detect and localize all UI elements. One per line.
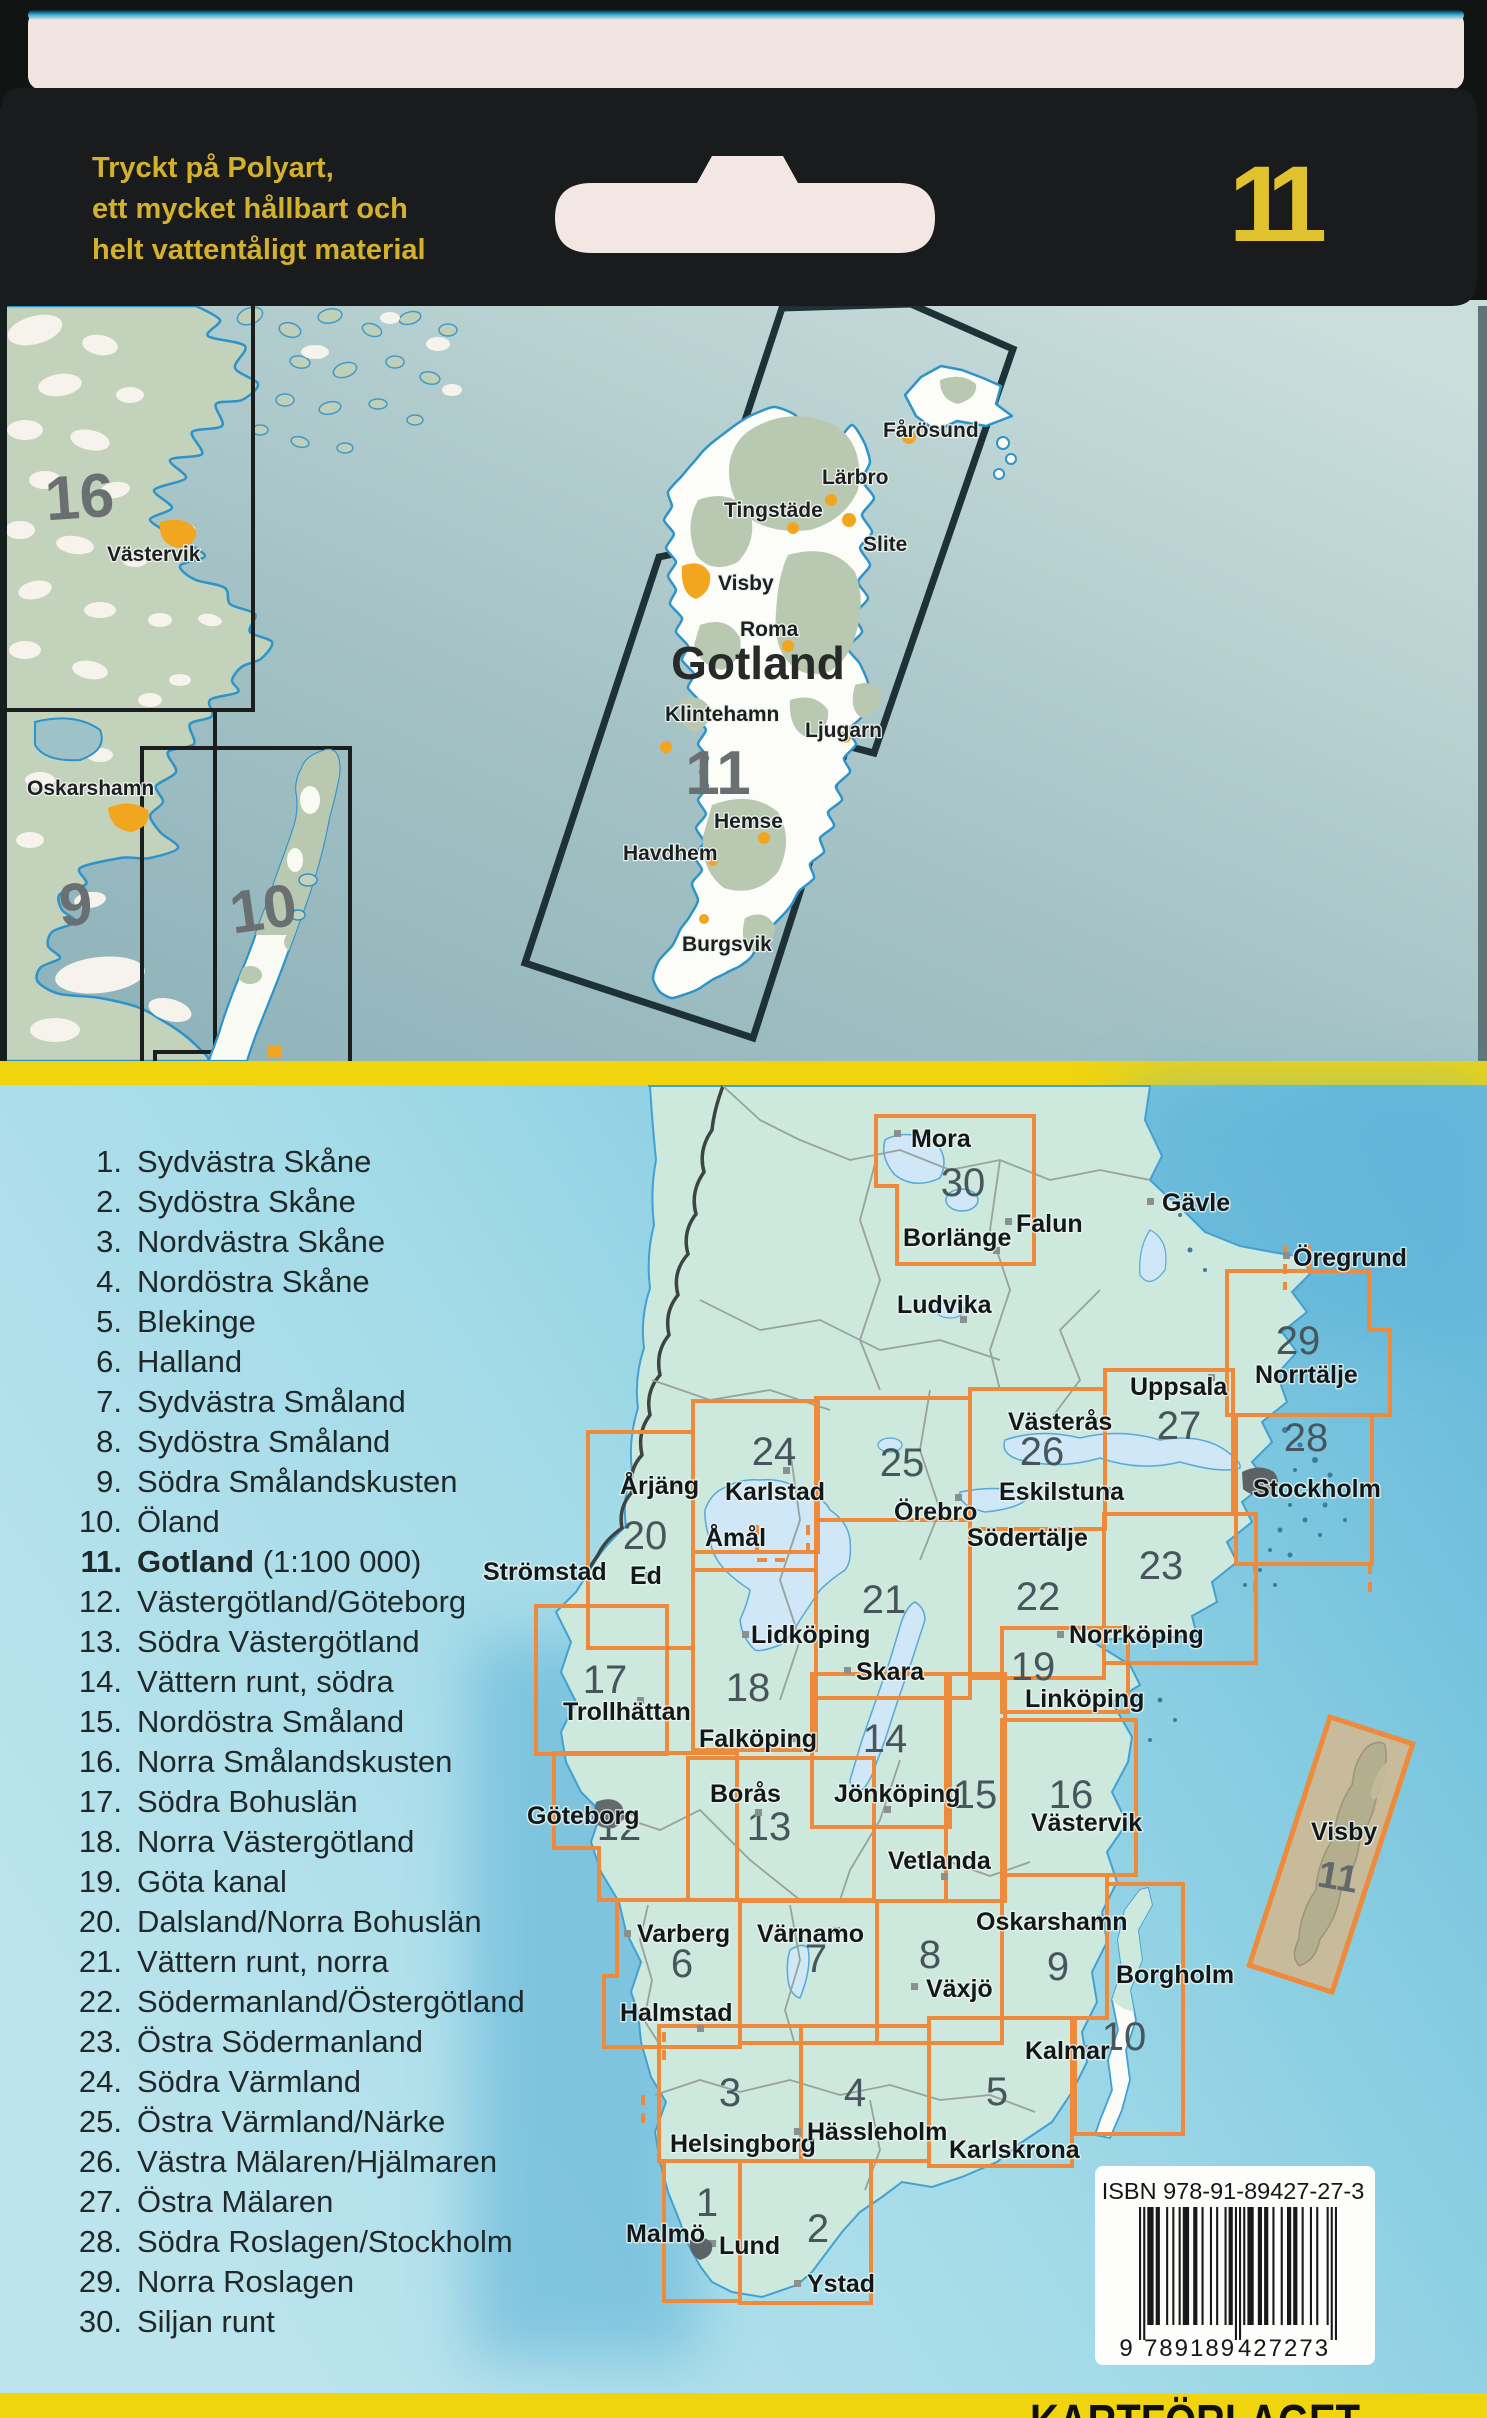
- svg-text:Västergötland/Göteborg: Västergötland/Göteborg: [137, 1584, 466, 1619]
- svg-text:30.: 30.: [79, 2304, 122, 2339]
- svg-text:23: 23: [1139, 1544, 1184, 1588]
- svg-text:Vättern runt, södra: Vättern runt, södra: [137, 1664, 395, 1699]
- svg-text:Lund: Lund: [719, 2232, 780, 2260]
- svg-text:Oskarshamn: Oskarshamn: [27, 777, 154, 800]
- svg-text:20.: 20.: [79, 1904, 122, 1939]
- svg-text:10.: 10.: [79, 1504, 122, 1539]
- svg-text:Västra Mälaren/Hjälmaren: Västra Mälaren/Hjälmaren: [137, 2144, 497, 2179]
- svg-text:Södertälje: Södertälje: [967, 1524, 1088, 1552]
- svg-text:Göteborg: Göteborg: [527, 1802, 640, 1830]
- svg-text:Trollhättan: Trollhättan: [563, 1698, 691, 1726]
- svg-text:Södra Bohuslän: Södra Bohuslän: [137, 1784, 358, 1819]
- svg-text:ISBN 978-91-89427-27-3: ISBN 978-91-89427-27-3: [1102, 2178, 1365, 2204]
- svg-text:Öland: Öland: [137, 1504, 220, 1539]
- svg-text:Södra Värmland: Södra Värmland: [137, 2064, 361, 2099]
- svg-text:Falköping: Falköping: [699, 1725, 817, 1753]
- svg-text:Nordvästra Skåne: Nordvästra Skåne: [137, 1224, 385, 1259]
- svg-text:27: 27: [1157, 1404, 1202, 1448]
- svg-text:6: 6: [671, 1942, 693, 1986]
- svg-text:Slite: Slite: [863, 533, 907, 556]
- svg-text:26: 26: [1020, 1430, 1065, 1474]
- svg-text:Tryckt på Polyart,: Tryckt på Polyart,: [92, 152, 334, 184]
- svg-text:Borgholm: Borgholm: [1116, 1961, 1234, 1989]
- svg-text:Borlänge: Borlänge: [903, 1224, 1011, 1252]
- svg-text:Malmö: Malmö: [626, 2220, 705, 2248]
- svg-text:Ljugarn: Ljugarn: [805, 719, 882, 742]
- svg-text:Havdhem: Havdhem: [623, 842, 718, 865]
- svg-text:789189: 789189: [1144, 2335, 1236, 2362]
- svg-text:10: 10: [225, 871, 300, 947]
- svg-text:12.: 12.: [79, 1584, 122, 1619]
- svg-text:Burgsvik: Burgsvik: [682, 933, 772, 956]
- svg-text:2: 2: [807, 2207, 829, 2251]
- svg-text:Västervik: Västervik: [1031, 1809, 1142, 1837]
- svg-text:2.: 2.: [96, 1184, 122, 1219]
- svg-text:Växjö: Växjö: [926, 1975, 993, 2003]
- svg-text:Hässleholm: Hässleholm: [807, 2118, 947, 2146]
- svg-text:Halmstad: Halmstad: [620, 1999, 733, 2027]
- svg-text:13.: 13.: [79, 1624, 122, 1659]
- svg-text:Klintehamn: Klintehamn: [665, 703, 779, 726]
- svg-text:Norrköping: Norrköping: [1069, 1621, 1204, 1649]
- svg-text:Halland: Halland: [137, 1344, 242, 1379]
- svg-text:11.: 11.: [81, 1544, 122, 1579]
- svg-text:Gävle: Gävle: [1162, 1189, 1230, 1217]
- svg-text:Stockholm: Stockholm: [1253, 1475, 1381, 1503]
- svg-text:Sydöstra Skåne: Sydöstra Skåne: [137, 1184, 356, 1219]
- svg-text:Hemse: Hemse: [714, 810, 783, 833]
- svg-text:KARTFÖRLAGET: KARTFÖRLAGET: [1030, 2396, 1360, 2418]
- svg-text:Vättern runt, norra: Vättern runt, norra: [137, 1944, 389, 1979]
- svg-text:helt vattentåligt material: helt vattentåligt material: [92, 234, 426, 266]
- svg-text:Östra Värmland/Närke: Östra Värmland/Närke: [137, 2104, 445, 2139]
- svg-text:13: 13: [747, 1805, 792, 1849]
- svg-text:18: 18: [726, 1666, 771, 1710]
- svg-text:28: 28: [1284, 1416, 1329, 1460]
- svg-text:9: 9: [57, 870, 95, 939]
- svg-text:Södra Roslagen/Stockholm: Södra Roslagen/Stockholm: [137, 2224, 513, 2259]
- svg-text:20: 20: [623, 1514, 668, 1558]
- svg-text:ett mycket hållbart och: ett mycket hållbart och: [92, 193, 408, 225]
- svg-text:4.: 4.: [96, 1264, 122, 1299]
- svg-text:23.: 23.: [79, 2024, 122, 2059]
- svg-text:Falun: Falun: [1016, 1210, 1083, 1238]
- svg-text:Ystad: Ystad: [807, 2270, 875, 2298]
- svg-text:Gotland: Gotland: [671, 637, 845, 689]
- svg-text:Nordöstra Småland: Nordöstra Småland: [137, 1704, 404, 1739]
- svg-text:Öregrund: Öregrund: [1293, 1243, 1407, 1272]
- svg-text:Fårösund: Fårösund: [883, 419, 979, 442]
- svg-text:Strömstad: Strömstad: [483, 1558, 607, 1586]
- svg-text:14: 14: [863, 1717, 908, 1761]
- svg-text:Vetlanda: Vetlanda: [888, 1847, 992, 1875]
- svg-text:Nordöstra Skåne: Nordöstra Skåne: [137, 1264, 370, 1299]
- svg-text:9: 9: [1119, 2335, 1132, 2362]
- svg-text:16: 16: [43, 461, 117, 535]
- svg-text:22.: 22.: [79, 1984, 122, 2019]
- svg-text:9: 9: [1047, 1945, 1069, 1989]
- svg-text:29.: 29.: [79, 2264, 122, 2299]
- svg-text:Östra Mälaren: Östra Mälaren: [137, 2184, 333, 2219]
- svg-text:21: 21: [862, 1578, 907, 1622]
- svg-text:11: 11: [1229, 143, 1325, 264]
- svg-text:Karlskrona: Karlskrona: [949, 2136, 1081, 2164]
- svg-text:19.: 19.: [79, 1864, 122, 1899]
- svg-text:17.: 17.: [79, 1784, 122, 1819]
- svg-text:Södermanland/Östergötland: Södermanland/Östergötland: [137, 1984, 525, 2019]
- svg-text:Norra Roslagen: Norra Roslagen: [137, 2264, 354, 2299]
- svg-text:Norra Smålandskusten: Norra Smålandskusten: [137, 1744, 452, 1779]
- svg-text:25: 25: [880, 1441, 925, 1485]
- svg-text:Blekinge: Blekinge: [137, 1304, 256, 1339]
- svg-text:Lärbro: Lärbro: [822, 466, 889, 489]
- svg-text:Norra Västergötland: Norra Västergötland: [137, 1824, 414, 1859]
- svg-text:27.: 27.: [79, 2184, 122, 2219]
- svg-text:Helsingborg: Helsingborg: [670, 2130, 816, 2158]
- svg-text:Västerås: Västerås: [1008, 1408, 1112, 1436]
- svg-text:29: 29: [1276, 1319, 1321, 1363]
- svg-text:8: 8: [919, 1933, 941, 1977]
- svg-text:Eskilstuna: Eskilstuna: [999, 1478, 1125, 1506]
- svg-text:15.: 15.: [79, 1704, 122, 1739]
- svg-text:Åmål: Åmål: [705, 1523, 766, 1552]
- svg-text:6.: 6.: [96, 1344, 122, 1379]
- svg-text:Uppsala: Uppsala: [1130, 1373, 1228, 1401]
- svg-text:8.: 8.: [96, 1424, 122, 1459]
- svg-text:Södra Smålandskusten: Södra Smålandskusten: [137, 1464, 458, 1499]
- svg-text:Visby: Visby: [1311, 1818, 1377, 1846]
- svg-text:24.: 24.: [79, 2064, 122, 2099]
- svg-text:7.: 7.: [96, 1384, 122, 1419]
- svg-text:22: 22: [1016, 1575, 1061, 1619]
- svg-text:Karlstad: Karlstad: [725, 1478, 825, 1506]
- svg-text:Årjäng: Årjäng: [620, 1471, 699, 1500]
- svg-text:Siljan runt: Siljan runt: [137, 2304, 275, 2339]
- svg-text:Sydvästra Skåne: Sydvästra Skåne: [137, 1144, 371, 1179]
- svg-text:3.: 3.: [96, 1224, 122, 1259]
- svg-text:17: 17: [583, 1658, 628, 1702]
- svg-text:Ludvika: Ludvika: [897, 1291, 993, 1319]
- svg-text:18.: 18.: [79, 1824, 122, 1859]
- svg-text:Linköping: Linköping: [1025, 1685, 1144, 1713]
- svg-text:Oskarshamn: Oskarshamn: [976, 1908, 1127, 1936]
- svg-text:11: 11: [685, 739, 751, 808]
- svg-text:Örebro: Örebro: [894, 1497, 977, 1526]
- svg-text:Sydöstra Småland: Sydöstra Småland: [137, 1424, 390, 1459]
- svg-text:Västervik: Västervik: [107, 543, 201, 566]
- svg-text:11: 11: [1314, 1854, 1361, 1902]
- svg-text:Jönköping: Jönköping: [834, 1780, 960, 1808]
- svg-text:14.: 14.: [79, 1664, 122, 1699]
- svg-text:Lidköping: Lidköping: [751, 1621, 870, 1649]
- svg-text:Dalsland/Norra Bohuslän: Dalsland/Norra Bohuslän: [137, 1904, 482, 1939]
- svg-text:19: 19: [1011, 1645, 1056, 1689]
- svg-text:21.: 21.: [79, 1944, 122, 1979]
- svg-text:28.: 28.: [79, 2224, 122, 2259]
- svg-text:Ed: Ed: [630, 1562, 662, 1590]
- svg-text:4: 4: [844, 2071, 866, 2115]
- svg-text:Tingstäde: Tingstäde: [724, 499, 823, 522]
- svg-text:5.: 5.: [96, 1304, 122, 1339]
- svg-text:Östra Södermanland: Östra Södermanland: [137, 2024, 423, 2059]
- svg-text:16.: 16.: [79, 1744, 122, 1779]
- svg-text:3: 3: [719, 2071, 741, 2115]
- svg-text:5: 5: [986, 2070, 1008, 2114]
- svg-text:Borås: Borås: [710, 1780, 781, 1808]
- svg-text:Göta kanal: Göta kanal: [137, 1864, 287, 1899]
- svg-text:Skara: Skara: [856, 1658, 925, 1686]
- svg-text:Norrtälje: Norrtälje: [1255, 1361, 1358, 1389]
- svg-text:Gotland (1:100 000): Gotland (1:100 000): [137, 1544, 421, 1579]
- svg-text:9.: 9.: [96, 1464, 122, 1499]
- svg-text:Värnamo: Värnamo: [757, 1920, 864, 1948]
- svg-text:1: 1: [696, 2181, 718, 2225]
- svg-text:Mora: Mora: [911, 1125, 972, 1153]
- svg-text:30: 30: [941, 1161, 986, 1205]
- svg-text:1.: 1.: [96, 1144, 122, 1179]
- svg-text:Varberg: Varberg: [637, 1920, 730, 1948]
- svg-text:25.: 25.: [79, 2104, 122, 2139]
- svg-text:26.: 26.: [79, 2144, 122, 2179]
- svg-text:Södra Västergötland: Södra Västergötland: [137, 1624, 420, 1659]
- svg-text:Kalmar: Kalmar: [1025, 2037, 1110, 2065]
- svg-text:Sydvästra Småland: Sydvästra Småland: [137, 1384, 406, 1419]
- svg-text:Visby: Visby: [718, 572, 774, 595]
- svg-text:427273: 427273: [1238, 2335, 1330, 2362]
